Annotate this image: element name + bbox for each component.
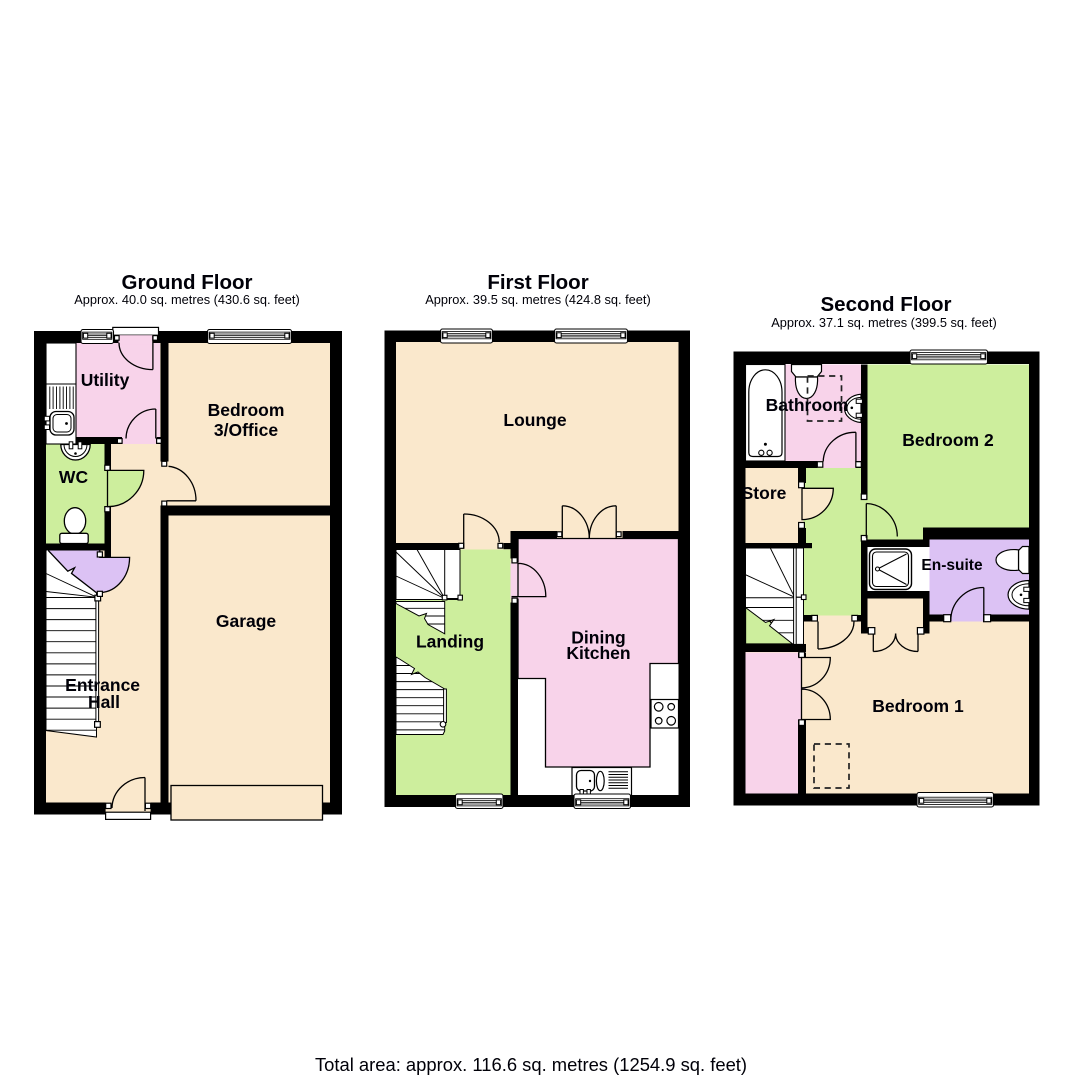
svg-text:Bedroom 2: Bedroom 2 — [902, 430, 994, 450]
svg-text:Bedroom 1: Bedroom 1 — [872, 696, 964, 716]
svg-text:En-suite: En-suite — [921, 557, 983, 574]
svg-text:Ground Floor: Ground Floor — [122, 271, 253, 294]
svg-text:Second Floor: Second Floor — [821, 293, 952, 316]
svg-text:Store: Store — [742, 483, 787, 503]
svg-text:3/Office: 3/Office — [214, 420, 278, 440]
svg-text:Garage: Garage — [216, 611, 277, 631]
svg-text:Total area: approx. 116.6 sq.: Total area: approx. 116.6 sq. metres (12… — [315, 1054, 747, 1075]
svg-text:Approx. 37.1 sq. metres (399.5: Approx. 37.1 sq. metres (399.5 sq. feet) — [771, 315, 996, 330]
svg-text:Lounge: Lounge — [503, 410, 566, 430]
svg-text:Bathroom: Bathroom — [766, 395, 849, 415]
svg-text:Bedroom: Bedroom — [208, 400, 285, 420]
svg-text:Landing: Landing — [416, 632, 484, 652]
svg-text:Kitchen: Kitchen — [566, 643, 630, 663]
svg-text:First Floor: First Floor — [487, 271, 588, 294]
svg-text:Hall: Hall — [88, 692, 120, 712]
svg-text:Approx. 39.5 sq. metres (424.8: Approx. 39.5 sq. metres (424.8 sq. feet) — [425, 292, 650, 307]
svg-text:Approx. 40.0 sq. metres (430.6: Approx. 40.0 sq. metres (430.6 sq. feet) — [74, 292, 299, 307]
svg-text:WC: WC — [59, 467, 89, 487]
svg-text:Utility: Utility — [81, 370, 130, 390]
